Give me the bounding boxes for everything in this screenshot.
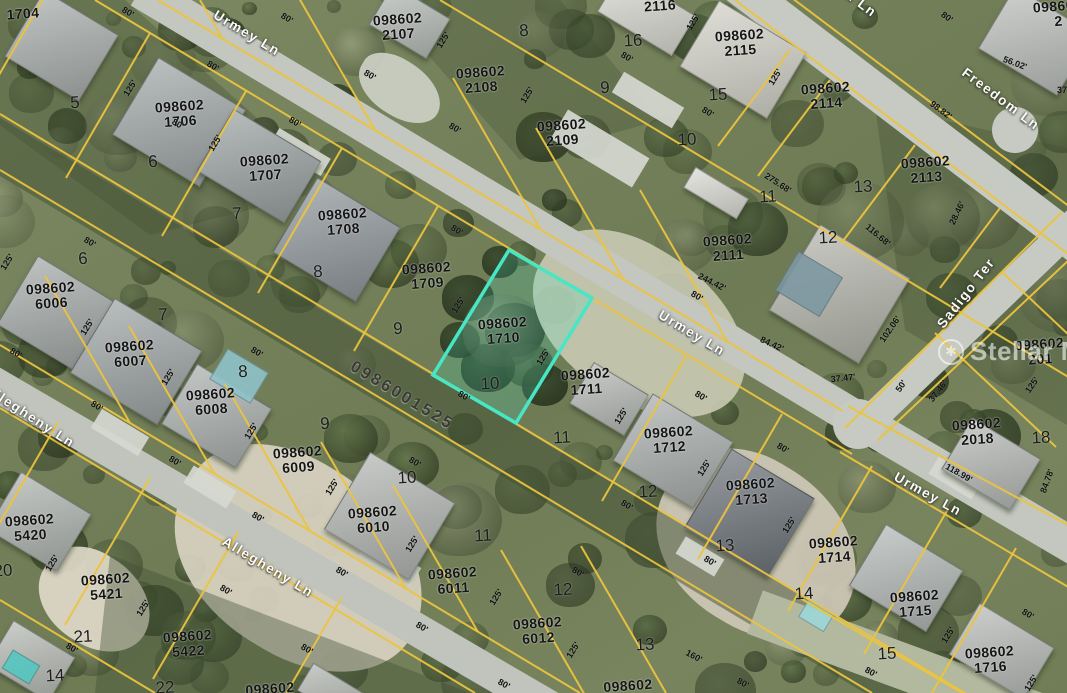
street-label: Sadigo Ter — [934, 255, 998, 331]
lot-number: 7 — [232, 204, 243, 224]
dimension-label: 125' — [766, 67, 784, 87]
parcel-label-2018: 0986022018 — [951, 415, 1002, 449]
street-label: Freedom Ln — [796, 0, 880, 20]
parcel-label-6012: 0986026012 — [512, 614, 563, 648]
parcel-label-2111: 0986022111 — [702, 231, 753, 265]
dimension-label: 125' — [206, 133, 224, 153]
annotations-layer: 1704098602210709860221080986022109211609… — [0, 0, 1067, 693]
dimension-label: 80' — [570, 565, 586, 580]
street-label: Urmey Ln — [211, 7, 283, 59]
lot-number: 15 — [708, 85, 728, 106]
watermark: ✱ Stellar MLS — [938, 336, 1067, 367]
parcel-label-6009: 0986026009 — [272, 443, 323, 477]
dimension-label: 80' — [689, 289, 705, 304]
lot-number: 12 — [638, 482, 658, 503]
lot-number: 13 — [635, 635, 655, 656]
parcel-label-1711: 0986021711 — [560, 365, 611, 399]
lot-number: 14 — [794, 584, 814, 605]
lot-number: 12 — [553, 580, 573, 601]
dimension-label: 80' — [218, 583, 234, 598]
dimension-label: 80' — [619, 50, 635, 65]
lot-number: 18 — [1031, 428, 1051, 449]
dimension-label: 80' — [334, 565, 350, 580]
dimension-label: 80' — [456, 389, 472, 404]
parcel-label-2115: 0986022115 — [714, 26, 765, 60]
strip-parcel-label: 0986001525 — [347, 358, 458, 435]
dimension-label: 125' — [434, 30, 452, 50]
lot-number: 9 — [600, 78, 611, 98]
dimension-label: 125' — [159, 367, 177, 387]
lot-number: 7 — [158, 305, 169, 325]
dimension-label: 80' — [167, 454, 183, 469]
dimension-label: 125' — [134, 598, 152, 618]
dimension-label: 84.42' — [759, 334, 786, 353]
street-label: Urmey Ln — [892, 469, 965, 519]
dimension-label: 116.68' — [864, 222, 893, 248]
dimension-label: 125' — [1023, 375, 1041, 395]
lot-number: 11 — [474, 526, 493, 547]
dimension-label: 125' — [121, 78, 139, 98]
dimension-label: 80' — [1020, 607, 1036, 622]
lot-number: 6 — [78, 249, 89, 269]
lot-number: 13 — [715, 536, 735, 557]
parcel-label-1714: 0986021714 — [808, 533, 859, 567]
dimension-label: 80' — [362, 68, 378, 83]
dimension-label: 244.42' — [697, 271, 728, 293]
lot-number: 11 — [759, 187, 778, 208]
lot-number: 8 — [238, 362, 249, 382]
lot-number: 8 — [313, 262, 324, 282]
parcel-label-1708: 0986021708 — [317, 205, 368, 239]
map-canvas: 1704098602210709860221080986022109211609… — [0, 0, 1067, 693]
parcel-label-2107: 0986022107 — [372, 10, 423, 44]
lot-number: 10 — [480, 374, 500, 395]
street-label: Allegheny Ln — [220, 534, 317, 600]
dimension-label: 80' — [619, 498, 635, 513]
parcel-label-2: 0986022 — [1032, 0, 1067, 31]
dimension-label: 37.47' — [830, 372, 856, 385]
lot-number: 5 — [70, 93, 81, 113]
dimension-label: 80' — [205, 59, 221, 74]
lot-number: 6 — [148, 152, 159, 172]
lot-number: 20 — [0, 561, 13, 582]
parcel-label-1707: 0986021707 — [239, 151, 290, 185]
street-label: Freedom Ln — [959, 65, 1043, 133]
parcel-label-2116: 2116 — [644, 0, 677, 15]
dimension-label: 125' — [403, 534, 421, 554]
dimension-label: 80' — [693, 389, 709, 404]
dimension-label: 125' — [242, 421, 260, 441]
parcel-label-6007: 0986026007 — [104, 337, 155, 371]
lot-number: 13 — [853, 177, 873, 198]
lot-number: 9 — [320, 414, 331, 434]
parcel-label-5421: 0986025421 — [80, 570, 131, 604]
dimension-label: 80' — [735, 676, 750, 691]
parcel-label-partial: 098602 — [603, 677, 653, 693]
dimension-label: 80' — [414, 620, 430, 635]
dimension-label: 125' — [564, 640, 582, 660]
dimension-label: 98.82' — [928, 99, 954, 122]
parcel-label-6011: 0986026011 — [427, 564, 478, 598]
parcel-label-1704: 1704 — [6, 5, 40, 22]
dimension-label: 80' — [8, 346, 24, 361]
parcel-label-partial: 098602 — [245, 680, 295, 693]
street-label: Allegheny Ln — [0, 381, 78, 450]
dimension-label: 125' — [43, 553, 61, 573]
dimension-label: 80' — [496, 677, 511, 692]
dimension-label: 125' — [487, 587, 505, 607]
dimension-label: 80' — [120, 5, 136, 20]
lot-number: 16 — [623, 31, 643, 52]
dimension-label: 118.99' — [944, 462, 974, 485]
parcel-label-6006: 0986026006 — [25, 279, 76, 313]
parcel-label-1716: 0986021716 — [964, 643, 1015, 677]
dimension-label: 125' — [0, 252, 16, 272]
lot-number: 12 — [818, 228, 838, 249]
dimension-label: 80' — [700, 105, 716, 120]
dimension-label: 80' — [939, 9, 955, 24]
parcel-label-2108: 0986022108 — [455, 63, 506, 97]
street-label: Urmey Ln — [656, 307, 728, 359]
dimension-label: 160' — [684, 648, 704, 665]
lot-number: 11 — [553, 428, 572, 449]
dimension-label: 28.46' — [947, 200, 967, 227]
dimension-label: 80' — [449, 223, 465, 238]
lot-number: 15 — [877, 644, 897, 665]
dimension-label: 84.78' — [1038, 468, 1056, 495]
dimension-label: 80' — [775, 441, 791, 456]
dimension-label: 80' — [299, 642, 315, 657]
dimension-label: 125' — [1022, 673, 1040, 693]
dimension-label: 125' — [323, 477, 341, 497]
parcel-label-1712: 0986021712 — [643, 423, 694, 457]
dimension-label: 125' — [939, 625, 957, 645]
watermark-text: Stellar MLS — [970, 336, 1067, 367]
parcel-label-5420: 0986025420 — [4, 511, 55, 545]
parcel-label-6010: 0986026010 — [347, 503, 398, 537]
dimension-label: 125' — [695, 458, 713, 478]
parcel-label-1715: 0986021715 — [889, 587, 940, 621]
dimension-label: 56.02' — [1002, 54, 1029, 72]
parcel-label-2113: 0986022113 — [900, 153, 951, 187]
parcel-label-2114: 0986022114 — [800, 79, 851, 113]
lot-number: 14 — [45, 666, 65, 687]
lot-number: 9 — [393, 319, 404, 339]
dimension-label: 102.06' — [877, 314, 902, 344]
dimension-label: 80' — [89, 399, 105, 414]
parcel-label-2109: 0986022109 — [536, 116, 587, 150]
lot-number: 10 — [397, 468, 417, 489]
lot-number: 10 — [677, 130, 697, 151]
dimension-label: 80' — [250, 510, 266, 525]
dimension-label: 125' — [449, 295, 467, 315]
dimension-label: 80' — [287, 115, 303, 130]
dimension-label: 125' — [684, 12, 702, 32]
dimension-label: 37.46' — [926, 378, 949, 404]
dimension-label: 125' — [612, 406, 630, 426]
dimension-label: 80' — [279, 11, 295, 26]
dimension-label: 80' — [863, 665, 878, 680]
lot-number: 22 — [155, 678, 175, 693]
dimension-label: 80' — [82, 235, 98, 250]
dimension-label: 125' — [534, 347, 552, 367]
dimension-label: 125' — [518, 85, 536, 105]
stellar-mls-logo-icon: ✱ — [938, 339, 964, 365]
parcel-label-6008: 0986026008 — [185, 385, 236, 419]
dimension-label: 80' — [447, 121, 463, 136]
parcel-label-1709: 0986021709 — [401, 259, 452, 293]
parcel-label-5422: 0986025422 — [162, 627, 213, 661]
lot-number: 8 — [519, 21, 530, 41]
dimension-label: 50' — [893, 378, 908, 394]
parcel-label-1710: 0986021710 — [477, 314, 528, 348]
dimension-label: 37 — [1057, 85, 1067, 95]
dimension-label: 80' — [249, 345, 265, 360]
parcel-label-1713: 0986021713 — [725, 475, 776, 509]
dimension-label: 125' — [78, 317, 96, 337]
dimension-label: 125' — [780, 515, 798, 535]
